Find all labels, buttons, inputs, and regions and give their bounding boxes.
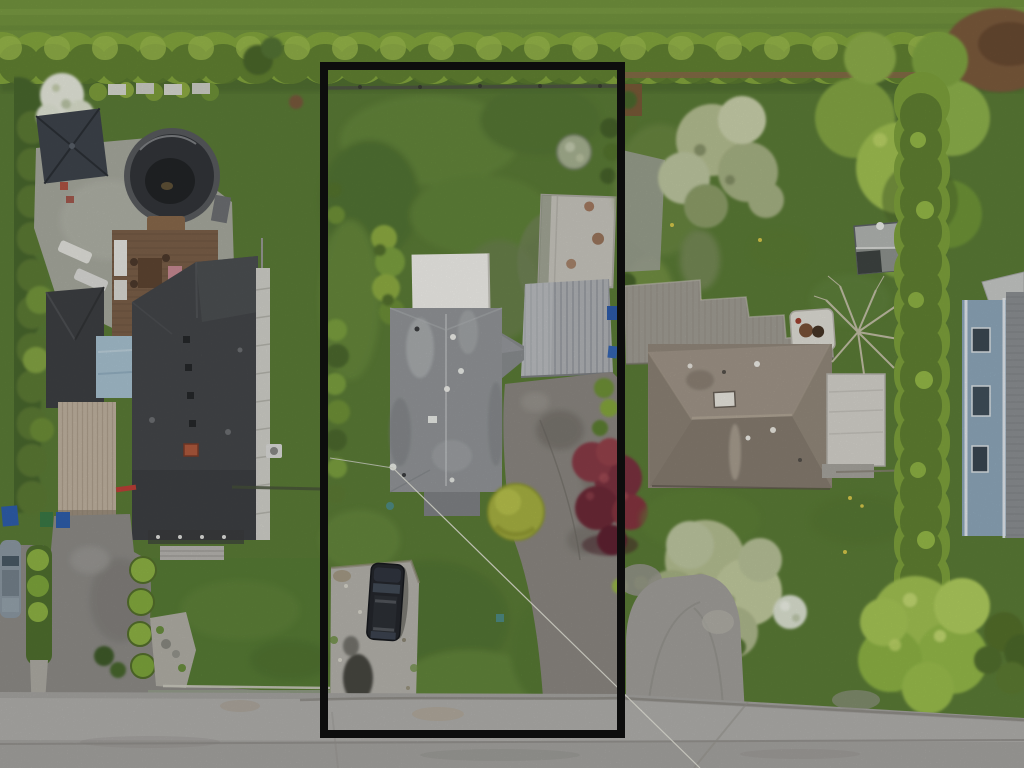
aerial-photo — [0, 0, 1024, 768]
film-grain — [0, 0, 1024, 768]
